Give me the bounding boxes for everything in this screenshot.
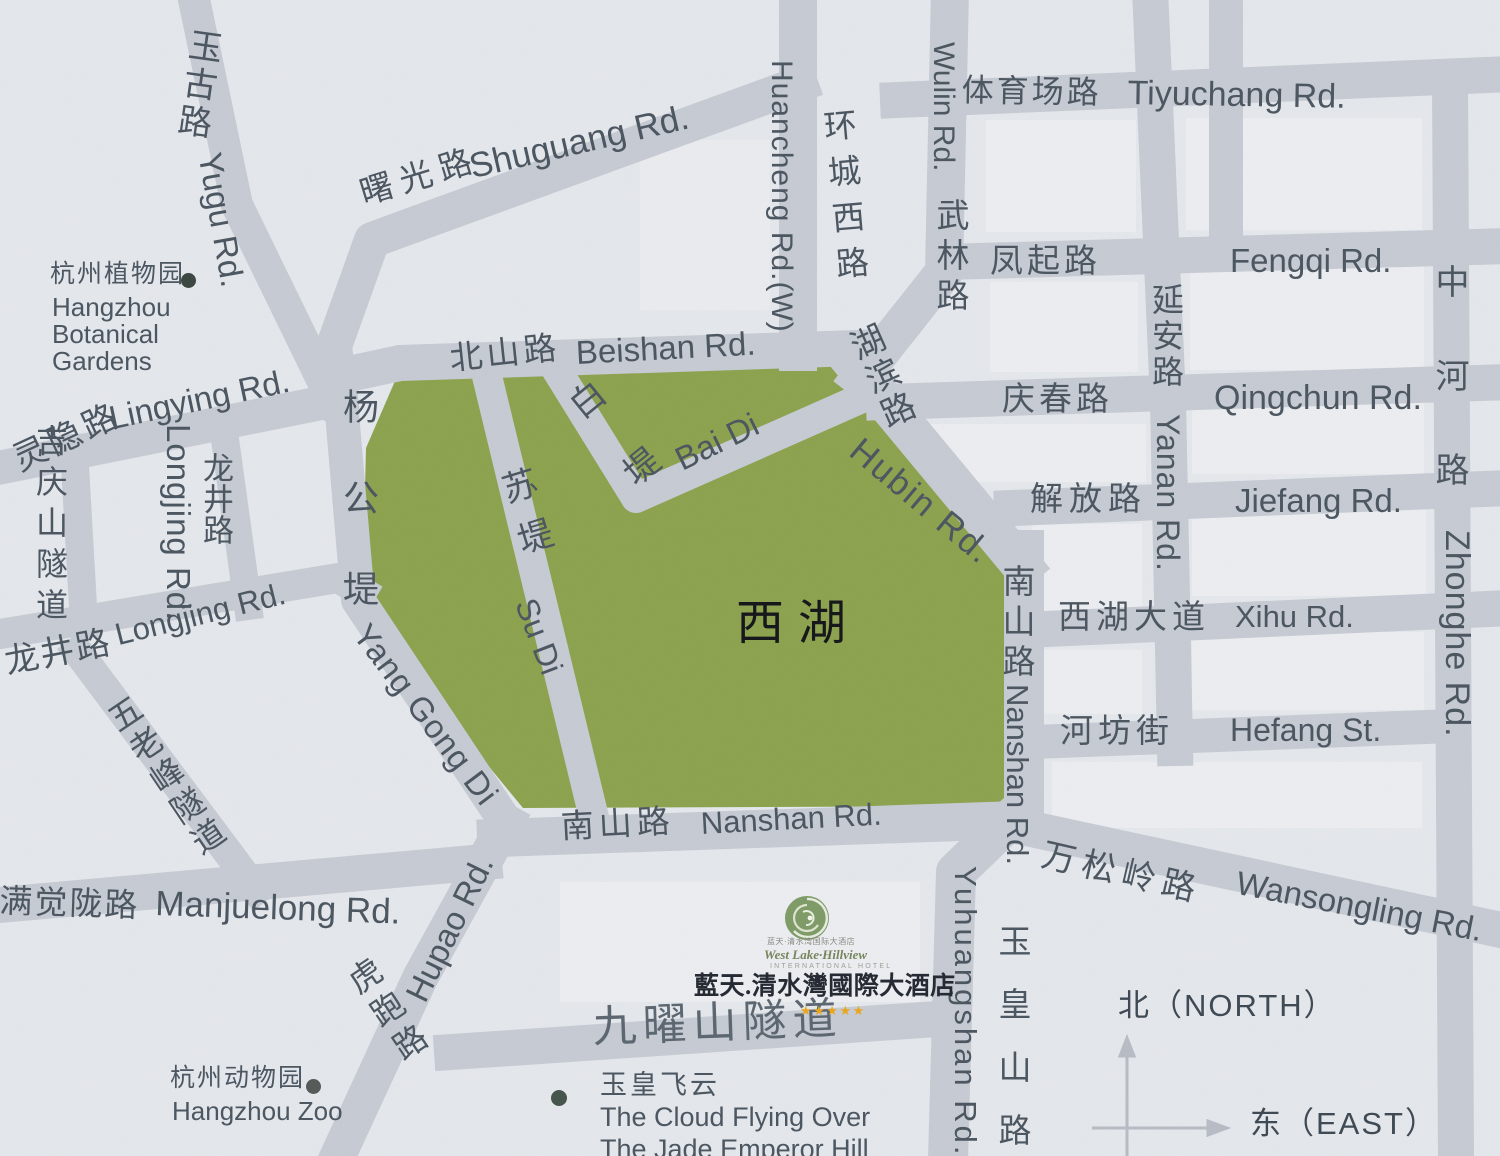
road-label-yuhuangshan-en: Yuhuangshan Rd. (950, 866, 981, 1156)
road-label-longjing-vertical-en: Longjing Rd. (162, 424, 195, 621)
road-label-wulin-en: Wulin Rd. (928, 42, 958, 172)
road-label-manjuelong-cn: 满觉陇路 (0, 884, 140, 922)
road-label-longjing-vertical-cn: 龙井路 (200, 452, 231, 545)
road-label-fengqi-en: Fengqi Rd. (1230, 244, 1391, 277)
poi-marker-jade-emperor (551, 1090, 567, 1106)
poi-zoo-label-cn: 杭州动物园 (170, 1066, 305, 1091)
road-label-fengqi-cn: 凤起路 (990, 244, 1101, 277)
compass-north-label: 北（NORTH） (1118, 990, 1337, 1021)
road-label-qingchun-en: Qingchun Rd. (1214, 381, 1422, 415)
hotel-name-script: West Lake·Hillview (764, 948, 867, 961)
poi-marker-zoo (306, 1079, 321, 1094)
hotel-star-rating: ★★★★★ (800, 1004, 866, 1017)
poi-botanical-gardens-label-en1: Hangzhou (52, 294, 171, 320)
road-label-jiefang-en: Jiefang Rd. (1235, 484, 1402, 517)
road-label-hefang-cn: 河坊街 (1060, 714, 1174, 747)
road-label-nanshan-horizontal-en: Nanshan Rd. (700, 799, 882, 839)
road-label-beishan-en: Beishan Rd. (575, 327, 756, 369)
road-label-yanan-cn: 延安路 (1150, 283, 1182, 391)
road-label-nanshan-horizontal-cn: 南山路 (560, 804, 676, 843)
road-label-zhonghe-en: Zhonghe Rd. (1440, 530, 1474, 738)
road-label-xihu-en: Xihu Rd. (1235, 601, 1354, 632)
hangzhou-west-lake-map: 玉古路 Yugu Rd. 曙光路 Shuguang Rd. Huancheng … (0, 0, 1500, 1156)
road-label-manjuelong-en: Manjuelong Rd. (155, 886, 401, 930)
road-label-wulin-cn: 武林路 (934, 198, 967, 318)
road-label-yuhuangshan-cn: 玉皇山路 (996, 924, 1029, 1156)
lake-name-label: 西湖 (736, 600, 860, 648)
road-label-hefang-en: Hefang St. (1230, 714, 1381, 746)
hotel-name-small-cn: 蓝天·清水湾国际大酒店 (767, 938, 855, 946)
poi-jade-emperor-label-en2: The Jade Emperor Hill (600, 1136, 869, 1156)
poi-marker-botanical-gardens (181, 273, 196, 288)
compass-east-label: 东（EAST） (1250, 1108, 1438, 1139)
road-label-jiefang-cn: 解放路 (1030, 482, 1147, 515)
poi-botanical-gardens-label-en3: Gardens (52, 348, 152, 374)
hotel-name-cn: 藍天.清水灣國際大酒店 (694, 974, 956, 999)
poi-botanical-gardens-label-en2: Botanical (52, 321, 159, 347)
road-label-tiyuchang-en: Tiyuchang Rd. (1127, 76, 1346, 114)
road-label-yanan-en: Yanan Rd. (1152, 414, 1184, 572)
road-label-xihu-cn: 西湖大道 (1058, 600, 1210, 633)
hotel-logo-icon (783, 894, 831, 942)
road-label-nanshan-vertical-en: Nanshan Rd. (1002, 684, 1033, 865)
poi-jade-emperor-label-en1: The Cloud Flying Over (600, 1104, 870, 1131)
road-label-qingchun-cn: 庆春路 (1002, 382, 1113, 415)
road-label-zhonghe-cn: 中河路 (1432, 264, 1466, 546)
road-label-tiyuchang-cn: 体育场路 (961, 74, 1102, 108)
road-label-nanshan-vertical-cn: 南山路 (1000, 564, 1033, 684)
poi-jade-emperor-label-cn: 玉皇飞云 (600, 1072, 720, 1099)
road-label-huancheng-en: Huancheng Rd.(W) (766, 60, 796, 333)
poi-botanical-gardens-label-cn: 杭州植物园 (50, 262, 185, 287)
poi-zoo-label-en: Hangzhou Zoo (172, 1098, 343, 1124)
road-label-jiqingshan-tunnel: 吉庆山隧道 (34, 424, 66, 629)
hotel-name-international: INTERNATIONAL HOTEL (770, 963, 892, 970)
